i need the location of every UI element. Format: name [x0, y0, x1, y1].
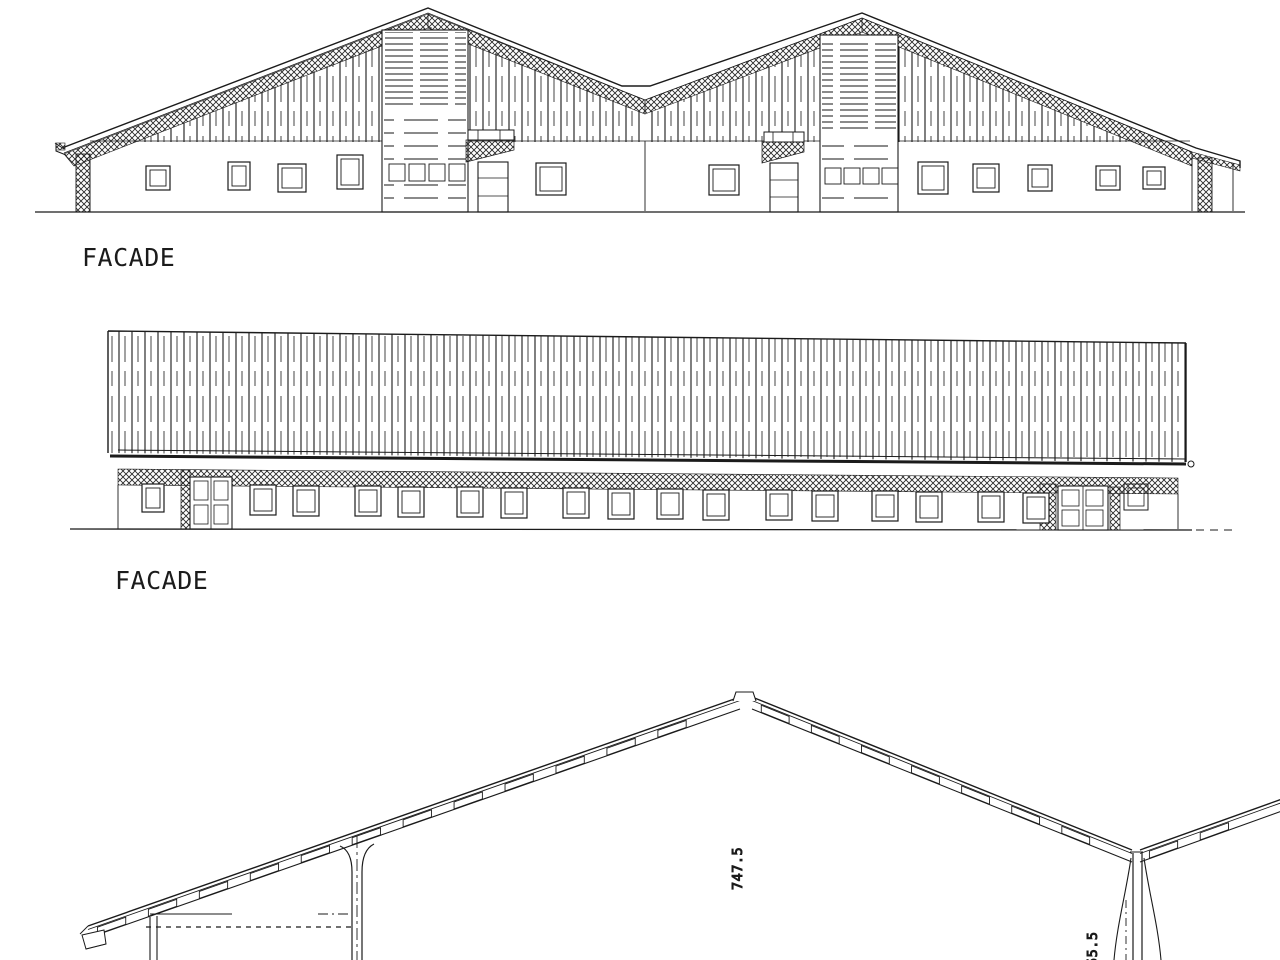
window-outer	[918, 162, 948, 194]
board-cladding-band	[108, 331, 1186, 462]
purlin	[505, 774, 533, 791]
purlin	[861, 746, 889, 764]
sliding-door-right	[820, 35, 898, 212]
roof-line	[752, 697, 1132, 850]
sliding-door-left	[382, 30, 468, 212]
interior-column	[340, 836, 374, 960]
left-wall	[150, 916, 157, 960]
roof-cross-section: 747.5 55.5	[80, 692, 1280, 960]
purlin	[811, 725, 839, 743]
purlin	[1012, 806, 1040, 824]
purlin	[556, 756, 584, 773]
purlin	[301, 846, 329, 863]
gutter-section	[82, 930, 106, 949]
facade-front-label: FACADE	[82, 243, 175, 272]
roof-line	[88, 709, 740, 938]
gutter-end-hook	[1188, 461, 1194, 467]
facade-side-elevation	[70, 331, 1236, 530]
purlin	[962, 786, 990, 804]
roof-line	[752, 709, 1132, 862]
roof-line	[1140, 799, 1280, 850]
entrance-door-left	[466, 130, 514, 212]
purlin	[250, 864, 278, 881]
dimension-55-5: 55.5	[1085, 931, 1101, 960]
purlin	[1200, 823, 1228, 840]
valley-column	[1114, 853, 1161, 960]
purlin	[1149, 841, 1177, 858]
facade-front-windows	[146, 155, 1165, 195]
purlin	[1062, 826, 1090, 844]
window-outer	[536, 163, 566, 195]
roof-line	[1140, 803, 1280, 854]
pier-left	[76, 154, 90, 212]
roof-slopes	[88, 697, 1280, 938]
ground-line	[70, 529, 1192, 530]
roof-line	[752, 701, 1132, 854]
facade-side-label: FACADE	[115, 566, 208, 595]
purlin	[352, 828, 380, 845]
entrance-door-right	[762, 132, 804, 212]
window-outer	[1143, 167, 1165, 189]
purlin	[912, 766, 940, 784]
purlin	[658, 720, 686, 737]
purlin	[761, 705, 789, 723]
roof-line	[88, 697, 740, 926]
purlin	[403, 810, 431, 827]
wall-edges	[90, 141, 1233, 211]
facade-front-elevation	[35, 8, 1245, 212]
architectural-drawing: FACADE	[0, 0, 1280, 960]
gutter-left-bracket	[56, 143, 65, 150]
ridge-cap	[733, 692, 756, 701]
window-outer	[709, 165, 739, 195]
drawing-sheet: FACADE	[0, 0, 1280, 960]
pier-right	[1198, 158, 1212, 212]
roof-line	[88, 701, 740, 930]
side-door-left	[181, 470, 232, 529]
purlin	[199, 881, 227, 898]
dimension-747-5: 747.5	[730, 847, 746, 890]
purlin	[454, 792, 482, 809]
purlin	[607, 738, 635, 755]
hatched-band	[118, 469, 1178, 494]
